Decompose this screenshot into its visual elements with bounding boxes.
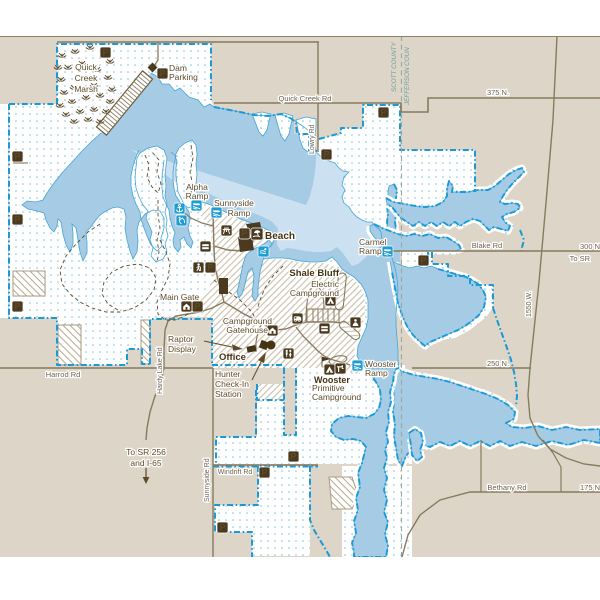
svg-text:Sunnyside: Sunnyside xyxy=(214,198,254,208)
svg-text:P: P xyxy=(219,523,225,533)
svg-text:P: P xyxy=(194,302,200,312)
svg-text:and I-65: and I-65 xyxy=(130,458,161,468)
svg-text:Hunter: Hunter xyxy=(215,369,241,379)
svg-text:Parking: Parking xyxy=(169,72,198,82)
svg-text:375 N.: 375 N. xyxy=(487,88,509,97)
svg-text:To SR: To SR xyxy=(570,254,591,263)
svg-text:Lowry Rd: Lowry Rd xyxy=(309,124,316,154)
svg-text:Raptor: Raptor xyxy=(168,334,194,344)
svg-text:Quick: Quick xyxy=(75,62,97,72)
svg-text:1550 W.: 1550 W. xyxy=(526,291,533,317)
svg-text:To SR 256: To SR 256 xyxy=(126,447,166,457)
svg-text:P: P xyxy=(290,452,296,462)
svg-text:Check-In: Check-In xyxy=(215,379,249,389)
svg-text:Sunnyside Rd: Sunnyside Rd xyxy=(204,458,211,502)
svg-text:300 N: 300 N xyxy=(580,242,600,251)
svg-text:SCOTT COUNTY: SCOTT COUNTY xyxy=(391,42,398,92)
svg-text:P: P xyxy=(420,256,426,266)
svg-text:Shale Bluff: Shale Bluff xyxy=(289,268,339,279)
svg-text:Display: Display xyxy=(168,344,197,354)
svg-text:Station: Station xyxy=(215,389,242,399)
svg-text:Creek: Creek xyxy=(75,73,98,83)
svg-text:P: P xyxy=(323,150,329,160)
svg-text:Ramp: Ramp xyxy=(186,191,209,201)
svg-text:P: P xyxy=(159,69,165,79)
svg-text:Ramp: Ramp xyxy=(359,246,382,256)
svg-text:Ramp: Ramp xyxy=(365,368,388,378)
svg-text:Quick Creek Rd: Quick Creek Rd xyxy=(279,94,332,103)
svg-text:Marsh: Marsh xyxy=(74,84,98,94)
svg-text:Gatehouse: Gatehouse xyxy=(226,325,268,335)
svg-text:P: P xyxy=(380,108,386,118)
svg-text:P: P xyxy=(14,152,20,162)
svg-text:P: P xyxy=(207,263,213,273)
svg-text:Campground: Campground xyxy=(312,392,361,402)
svg-text:Campground: Campground xyxy=(290,288,339,298)
svg-text:P: P xyxy=(261,468,267,478)
svg-text:P: P xyxy=(241,229,247,239)
svg-text:Hardy Lake Rd: Hardy Lake Rd xyxy=(157,347,164,394)
svg-text:250 N.: 250 N. xyxy=(487,359,509,368)
svg-text:Bethany Rd: Bethany Rd xyxy=(487,483,526,492)
svg-text:Office: Office xyxy=(219,352,246,363)
svg-text:Main Gate: Main Gate xyxy=(160,292,199,302)
svg-text:Beach: Beach xyxy=(265,231,295,242)
svg-text:P: P xyxy=(14,215,20,225)
svg-text:P: P xyxy=(102,48,108,58)
svg-text:Windrift Rd: Windrift Rd xyxy=(218,469,253,476)
svg-text:P: P xyxy=(14,302,20,312)
svg-text:JEFFERSON COUN: JEFFERSON COUN xyxy=(404,47,411,106)
svg-text:175 N: 175 N xyxy=(580,483,600,492)
svg-text:Harrod Rd: Harrod Rd xyxy=(46,370,81,379)
svg-text:Ramp: Ramp xyxy=(228,208,251,218)
svg-text:Blake Rd: Blake Rd xyxy=(472,241,502,250)
